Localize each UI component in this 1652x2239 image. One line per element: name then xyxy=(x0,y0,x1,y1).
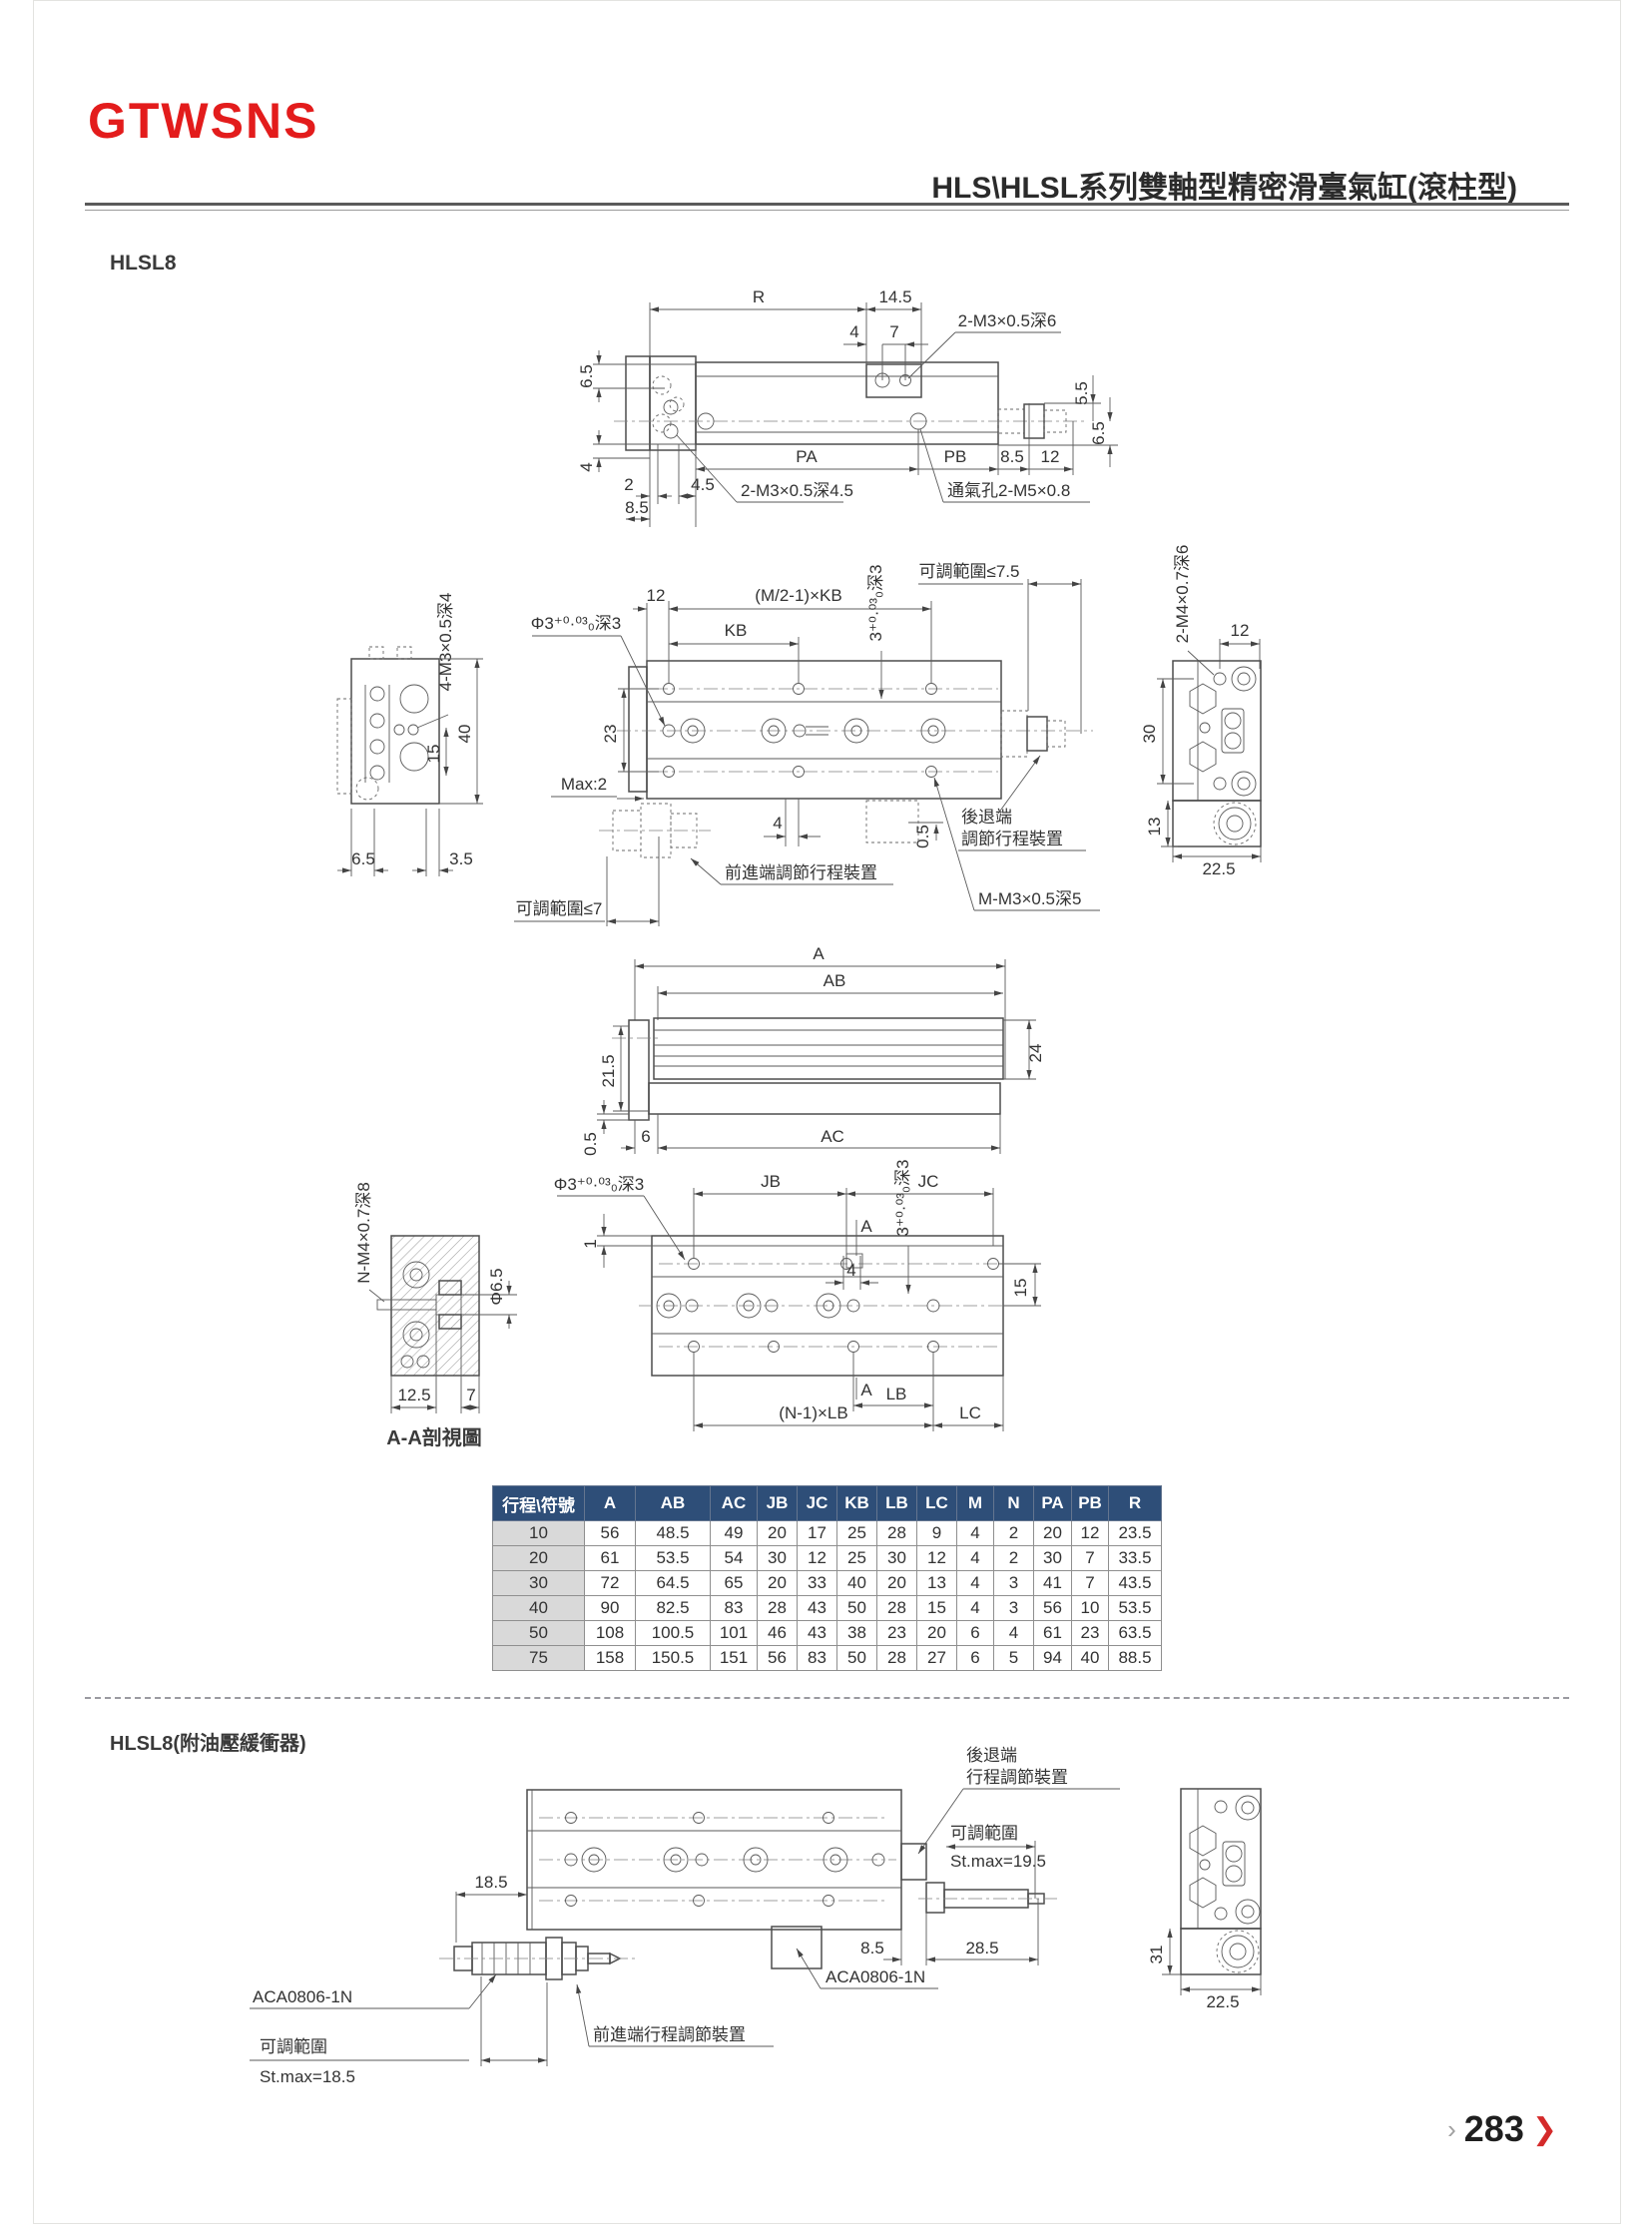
col-header: AB xyxy=(636,1486,711,1521)
dim-value: 12 xyxy=(1072,1521,1109,1546)
dim-label: 22.5 xyxy=(1206,1992,1239,2011)
thread-callout: 2-M3×0.5深4.5 xyxy=(741,481,853,500)
dim-label: 12 xyxy=(647,586,666,605)
dim-value: 88.5 xyxy=(1109,1646,1162,1671)
dim-label: 40 xyxy=(455,725,474,744)
dim-value: 20 xyxy=(877,1571,917,1596)
dim-value: 12 xyxy=(917,1546,957,1571)
adjust-range-callout: St.max=18.5 xyxy=(260,2067,355,2086)
dim-value: 30 xyxy=(758,1546,798,1571)
dim-label: 5.5 xyxy=(1072,381,1091,405)
dim-value: 23 xyxy=(877,1621,917,1646)
dim-label: 22.5 xyxy=(1202,859,1235,878)
dim-label: PB xyxy=(944,447,967,466)
rear-adjuster-callout: 調節行程裝置 xyxy=(961,830,1063,848)
col-header: LC xyxy=(917,1486,957,1521)
dim-label: 7 xyxy=(466,1386,475,1404)
dim-value: 33.5 xyxy=(1109,1546,1162,1571)
stroke-value: 30 xyxy=(493,1571,585,1596)
thread-callout: M-M3×0.5深5 xyxy=(978,889,1081,908)
section-caption: A-A剖視圖 xyxy=(386,1425,482,1449)
stroke-value: 20 xyxy=(493,1546,585,1571)
dim-label: JC xyxy=(918,1172,939,1191)
dim-value: 30 xyxy=(877,1546,917,1571)
dim-label: 4 xyxy=(849,322,858,341)
dim-value: 30 xyxy=(1034,1546,1072,1571)
dim-value: 23.5 xyxy=(1109,1521,1162,1546)
col-header: M xyxy=(957,1486,994,1521)
stroke-value: 75 xyxy=(493,1646,585,1671)
dim-value: 72 xyxy=(585,1571,636,1596)
dim-label: 3.5 xyxy=(449,849,473,868)
dim-table-body: 105648.54920172528942201223.5206153.5543… xyxy=(493,1521,1162,1671)
dim-label: R xyxy=(753,287,765,306)
dim-value: 2 xyxy=(994,1546,1034,1571)
dim-value: 4 xyxy=(994,1621,1034,1646)
dim-label: 12.5 xyxy=(397,1386,430,1404)
dim-value: 56 xyxy=(758,1646,798,1671)
dim-label: AC xyxy=(821,1127,844,1146)
adjust-range-callout: 可調範圍≤7 xyxy=(516,899,603,918)
dim-label: 30 xyxy=(1140,725,1159,744)
dim-label: 4.5 xyxy=(691,475,715,494)
dim-label: 4 xyxy=(577,462,596,471)
dim-label: 8.5 xyxy=(1000,447,1024,466)
dim-value: 4 xyxy=(957,1521,994,1546)
table-row: 307264.56520334020134341743.5 xyxy=(493,1571,1162,1596)
dim-label: 28.5 xyxy=(965,1939,998,1958)
dim-value: 3 xyxy=(994,1571,1034,1596)
dim-value: 3 xyxy=(994,1596,1034,1621)
dim-label: 8.5 xyxy=(860,1939,884,1958)
dim-value: 28 xyxy=(877,1646,917,1671)
dim-value: 9 xyxy=(917,1521,957,1546)
dim-value: 23 xyxy=(1072,1621,1109,1646)
dim-label: 0.5 xyxy=(581,1132,600,1156)
dim-value: 27 xyxy=(917,1646,957,1671)
drawing-plan-view: 4-M3×0.5深4 40 15 6.5 3.5 xyxy=(337,545,1261,926)
dim-value: 6 xyxy=(957,1621,994,1646)
chevron-red-icon: ❯ xyxy=(1532,2112,1557,2147)
tolerance-callout: 3⁺⁰·⁰³₀深3 xyxy=(866,565,885,642)
dim-value: 25 xyxy=(837,1521,877,1546)
buffer-model-callout: ACA0806-1N xyxy=(826,1967,925,1986)
dim-value: 28 xyxy=(877,1596,917,1621)
dim-value: 7 xyxy=(1072,1571,1109,1596)
dim-value: 7 xyxy=(1072,1546,1109,1571)
dim-value: 43.5 xyxy=(1109,1571,1162,1596)
section-letter: A xyxy=(860,1217,872,1236)
dim-table: 行程\符號AABACJBJCKBLBLCMNPAPBR 105648.54920… xyxy=(492,1485,1162,1671)
tolerance-callout: Φ3⁺⁰·⁰³₀深3 xyxy=(531,614,621,633)
dim-value: 90 xyxy=(585,1596,636,1621)
dim-value: 13 xyxy=(917,1571,957,1596)
adjust-range-callout: St.max=19.5 xyxy=(950,1852,1046,1871)
dim-value: 53.5 xyxy=(636,1546,711,1571)
catalog-page: GTWSNS HLS\HLSL系列雙軸型精密滑臺氣缸(滾柱型) HLSL8 HL… xyxy=(0,0,1652,2239)
dim-label: 13 xyxy=(1145,818,1164,837)
dim-label: 21.5 xyxy=(599,1054,618,1087)
dim-value: 64.5 xyxy=(636,1571,711,1596)
dim-label: (N-1)×LB xyxy=(779,1403,847,1422)
tolerance-callout: 3⁺⁰·⁰³₀深3 xyxy=(893,1160,912,1237)
dim-value: 46 xyxy=(758,1621,798,1646)
dim-value: 53.5 xyxy=(1109,1596,1162,1621)
dim-label: 24 xyxy=(1026,1044,1045,1063)
table-row: 409082.583284350281543561053.5 xyxy=(493,1596,1162,1621)
col-header: A xyxy=(585,1486,636,1521)
dim-value: 40 xyxy=(1072,1646,1109,1671)
dim-value: 40 xyxy=(837,1571,877,1596)
tolerance-callout: Φ3⁺⁰·⁰³₀深3 xyxy=(554,1175,644,1194)
dim-value: 158 xyxy=(585,1646,636,1671)
thread-callout: 2-M3×0.5深6 xyxy=(958,311,1057,330)
table-row: 75158150.5151568350282765944088.5 xyxy=(493,1646,1162,1671)
dim-label: A xyxy=(813,944,825,963)
section-letter: A xyxy=(860,1381,872,1399)
thread-callout: 2-M4×0.7深6 xyxy=(1173,545,1192,644)
col-header: JC xyxy=(798,1486,837,1521)
adjust-range-callout: 可調範圍 xyxy=(260,2037,327,2056)
dim-value: 6 xyxy=(957,1646,994,1671)
dim-table-head: 行程\符號AABACJBJCKBLBLCMNPAPBR xyxy=(493,1486,1162,1521)
front-adjuster-callout: 前進端調節行程裝置 xyxy=(725,863,877,882)
dim-label: 4 xyxy=(846,1261,855,1280)
dim-label: (M/2-1)×KB xyxy=(755,586,841,605)
adjust-range-callout: 可調範圍≤7.5 xyxy=(919,562,1020,581)
dim-label: 12 xyxy=(1231,621,1250,640)
adjust-range-callout: 可調範圍 xyxy=(950,1824,1018,1843)
dim-value: 10 xyxy=(1072,1596,1109,1621)
dim-value: 100.5 xyxy=(636,1621,711,1646)
dim-value: 5 xyxy=(994,1646,1034,1671)
buffer-model-callout: ACA0806-1N xyxy=(253,1987,352,2006)
dim-label: 12 xyxy=(1041,447,1060,466)
col-header: 行程\符號 xyxy=(493,1486,585,1521)
dim-label: 6.5 xyxy=(351,849,375,868)
dim-label: 6 xyxy=(641,1127,650,1146)
table-row: 50108100.5101464338232064612363.5 xyxy=(493,1621,1162,1646)
dim-value: 41 xyxy=(1034,1571,1072,1596)
dim-value: 50 xyxy=(837,1646,877,1671)
dim-value: 94 xyxy=(1034,1646,1072,1671)
dim-value: 43 xyxy=(798,1596,837,1621)
dim-label: 4 xyxy=(773,814,782,833)
col-header: KB xyxy=(837,1486,877,1521)
dim-value: 20 xyxy=(758,1521,798,1546)
dim-value: 20 xyxy=(758,1571,798,1596)
dim-value: 56 xyxy=(585,1521,636,1546)
dim-label: AB xyxy=(824,971,846,990)
dim-value: 65 xyxy=(711,1571,758,1596)
drawing-top-view: R 14.5 4 7 2-M3×0.5深6 6.5 4 xyxy=(577,287,1118,527)
dim-value: 63.5 xyxy=(1109,1621,1162,1646)
dim-label: LC xyxy=(959,1403,981,1422)
dim-label: 8.5 xyxy=(625,498,649,517)
dim-value: 54 xyxy=(711,1546,758,1571)
dim-label: 31 xyxy=(1147,1946,1166,1964)
dim-value: 4 xyxy=(957,1596,994,1621)
page-footer: › 283 ❯ xyxy=(1447,2108,1557,2150)
dim-label: 2 xyxy=(624,475,633,494)
dim-label: 18.5 xyxy=(474,1873,507,1892)
drawing-section-view: N-M4×0.7深8 Φ6.5 12.5 7 A-A剖視圖 xyxy=(354,1160,1041,1449)
dim-value: 49 xyxy=(711,1521,758,1546)
dim-value: 151 xyxy=(711,1646,758,1671)
dim-value: 28 xyxy=(758,1596,798,1621)
stroke-value: 40 xyxy=(493,1596,585,1621)
dim-label: 0.5 xyxy=(913,825,932,848)
front-adjuster-callout: 前進端行程調節裝置 xyxy=(593,2025,746,2044)
dim-value: 108 xyxy=(585,1621,636,1646)
stroke-value: 50 xyxy=(493,1621,585,1646)
dim-value: 28 xyxy=(877,1521,917,1546)
dim-label: 23 xyxy=(601,725,620,744)
dim-label: JB xyxy=(761,1172,781,1191)
col-header: LB xyxy=(877,1486,917,1521)
col-header: PB xyxy=(1072,1486,1109,1521)
dim-label: PA xyxy=(796,447,818,466)
dim-value: 38 xyxy=(837,1621,877,1646)
dim-value: 20 xyxy=(1034,1521,1072,1546)
dim-value: 2 xyxy=(994,1521,1034,1546)
table-row: 206153.55430122530124230733.5 xyxy=(493,1546,1162,1571)
drawing-buffer-view: 後退端 行程調節裝置 可調範圍 St.max=19.5 8.5 28.5 ACA… xyxy=(250,1746,1261,2086)
dim-label: 15 xyxy=(1011,1279,1030,1298)
dim-value: 17 xyxy=(798,1521,837,1546)
dim-value: 101 xyxy=(711,1621,758,1646)
dim-value: 4 xyxy=(957,1571,994,1596)
rear-adjuster-callout: 後退端 xyxy=(961,808,1012,827)
dim-label: 1 xyxy=(581,1239,600,1248)
thread-callout: N-M4×0.7深8 xyxy=(354,1182,373,1284)
dim-value: 15 xyxy=(917,1596,957,1621)
dim-value: 43 xyxy=(798,1621,837,1646)
dim-value: 4 xyxy=(957,1546,994,1571)
technical-drawings: R 14.5 4 7 2-M3×0.5深6 6.5 4 xyxy=(0,0,1652,2239)
dim-label: 14.5 xyxy=(878,287,911,306)
dim-label: 15 xyxy=(424,745,443,764)
dim-label: LB xyxy=(886,1385,907,1403)
rear-adjuster-callout: 行程調節裝置 xyxy=(966,1768,1068,1787)
col-header: N xyxy=(994,1486,1034,1521)
col-header: JB xyxy=(758,1486,798,1521)
dim-label: Max:2 xyxy=(561,775,607,794)
stroke-value: 10 xyxy=(493,1521,585,1546)
dim-label: 6.5 xyxy=(1089,421,1108,445)
dim-value: 50 xyxy=(837,1596,877,1621)
dim-value: 83 xyxy=(711,1596,758,1621)
dim-value: 150.5 xyxy=(636,1646,711,1671)
dim-value: 82.5 xyxy=(636,1596,711,1621)
dim-label: KB xyxy=(725,621,748,640)
vent-callout: 通氣孔2-M5×0.8 xyxy=(947,481,1070,500)
table-row: 105648.54920172528942201223.5 xyxy=(493,1521,1162,1546)
drawing-side-view: A AB 21.5 24 0.5 xyxy=(581,944,1045,1156)
dim-value: 20 xyxy=(917,1621,957,1646)
thread-callout: 4-M3×0.5深4 xyxy=(436,593,455,692)
dim-label: 6.5 xyxy=(577,364,596,388)
dim-value: 61 xyxy=(1034,1621,1072,1646)
rear-adjuster-callout: 後退端 xyxy=(966,1746,1017,1765)
dim-label: Φ6.5 xyxy=(487,1268,506,1305)
dim-value: 48.5 xyxy=(636,1521,711,1546)
dim-label: 7 xyxy=(889,322,898,341)
dim-value: 83 xyxy=(798,1646,837,1671)
col-header: PA xyxy=(1034,1486,1072,1521)
chevron-gray-icon: › xyxy=(1447,2114,1456,2145)
dim-value: 61 xyxy=(585,1546,636,1571)
dim-value: 25 xyxy=(837,1546,877,1571)
page-number: 283 xyxy=(1464,2108,1524,2150)
col-header: AC xyxy=(711,1486,758,1521)
dim-value: 12 xyxy=(798,1546,837,1571)
dim-value: 33 xyxy=(798,1571,837,1596)
dim-value: 56 xyxy=(1034,1596,1072,1621)
col-header: R xyxy=(1109,1486,1162,1521)
